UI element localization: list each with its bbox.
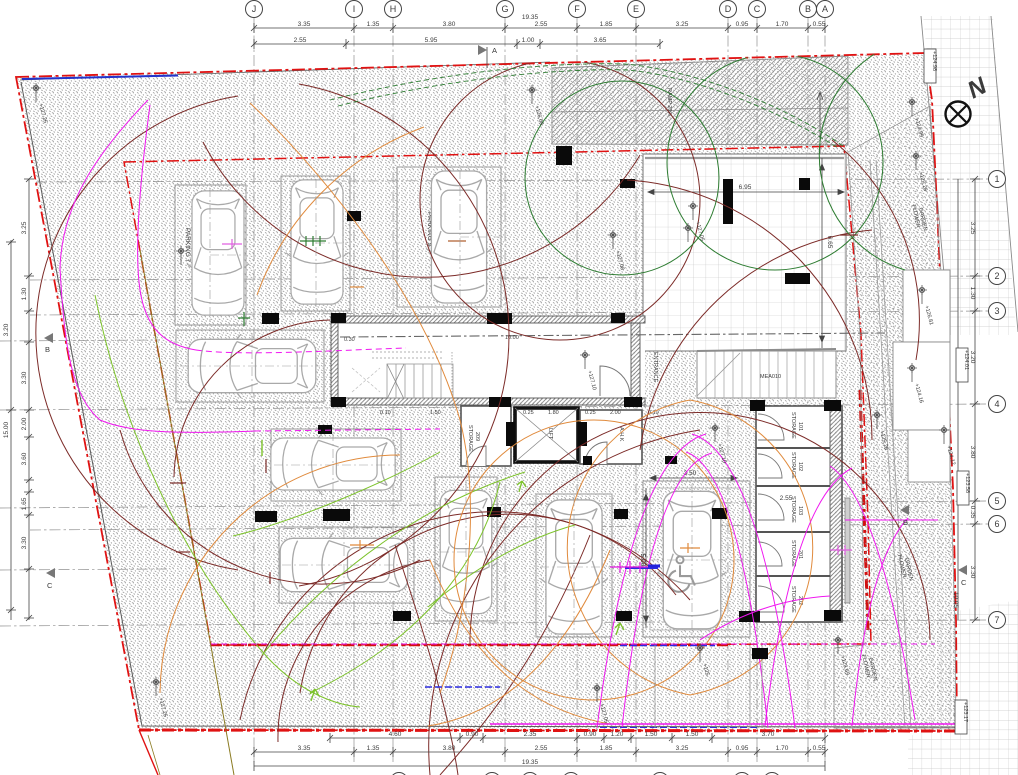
- svg-text:10.05: 10.05: [952, 592, 959, 609]
- svg-text:2.55: 2.55: [535, 745, 548, 752]
- svg-text:3.25: 3.25: [21, 221, 28, 234]
- svg-text:STORAGE: STORAGE: [790, 452, 796, 479]
- svg-text:0.10: 0.10: [380, 410, 391, 416]
- svg-text:0.10: 0.10: [648, 410, 659, 416]
- svg-text:4.60: 4.60: [389, 731, 402, 738]
- svg-text:C: C: [754, 4, 761, 14]
- svg-text:103: 103: [797, 506, 803, 515]
- svg-text:1.85: 1.85: [600, 745, 613, 752]
- svg-text:3.35: 3.35: [298, 21, 311, 28]
- svg-text:6.95: 6.95: [739, 184, 752, 191]
- svg-text:3.80: 3.80: [443, 21, 456, 28]
- svg-text:3: 3: [994, 306, 999, 316]
- svg-text:J: J: [252, 4, 257, 14]
- svg-text:4: 4: [994, 399, 999, 409]
- svg-text:+124.98: +124.98: [931, 51, 937, 71]
- svg-text:2: 2: [994, 271, 999, 281]
- svg-text:3.80: 3.80: [969, 446, 976, 459]
- svg-text:1: 1: [994, 174, 999, 184]
- svg-text:5.95: 5.95: [425, 37, 438, 44]
- svg-text:1.35: 1.35: [367, 745, 380, 752]
- svg-text:3.25: 3.25: [969, 222, 976, 235]
- svg-text:A: A: [822, 4, 828, 14]
- svg-text:3.70: 3.70: [762, 731, 775, 738]
- svg-text:3.20: 3.20: [969, 351, 976, 364]
- svg-text:3.25: 3.25: [676, 21, 689, 28]
- svg-text:B: B: [805, 4, 811, 14]
- svg-text:1.30: 1.30: [21, 287, 28, 300]
- svg-text:F: F: [574, 4, 580, 14]
- svg-text:ENTRANCE: ENTRANCE: [652, 352, 658, 383]
- svg-text:+123.58: +123.58: [964, 473, 970, 493]
- svg-text:E: E: [633, 4, 639, 14]
- svg-text:19.35: 19.35: [522, 14, 539, 21]
- svg-text:3.30: 3.30: [21, 536, 28, 549]
- svg-text:15.00: 15.00: [3, 421, 10, 438]
- svg-text:MEA010: MEA010: [760, 374, 781, 380]
- svg-text:3.60: 3.60: [21, 452, 28, 465]
- svg-text:101: 101: [797, 422, 803, 431]
- svg-text:1.00: 1.00: [522, 37, 535, 44]
- svg-text:2.00: 2.00: [610, 410, 621, 416]
- svg-text:+124.01: +124.01: [963, 350, 969, 370]
- svg-text:0.90: 0.90: [466, 731, 479, 738]
- svg-text:1.70: 1.70: [776, 745, 789, 752]
- svg-text:19.35: 19.35: [522, 759, 539, 766]
- svg-text:C: C: [47, 581, 53, 590]
- svg-text:2.55: 2.55: [780, 495, 793, 502]
- svg-text:3.35: 3.35: [298, 745, 311, 752]
- svg-text:STORAGE: STORAGE: [790, 586, 796, 613]
- svg-text:PARKING 7: PARKING 7: [184, 228, 191, 263]
- svg-text:0.30: 0.30: [344, 337, 355, 343]
- svg-text:1.65: 1.65: [21, 497, 28, 510]
- svg-text:1.20: 1.20: [611, 731, 624, 738]
- svg-text:2.55: 2.55: [294, 37, 307, 44]
- svg-text:1.50: 1.50: [430, 410, 441, 416]
- svg-text:H: H: [390, 4, 397, 14]
- svg-text:209: 209: [474, 432, 480, 441]
- svg-text:3.30: 3.30: [21, 371, 28, 384]
- svg-text:0.55: 0.55: [813, 21, 826, 28]
- svg-text:I: I: [353, 4, 356, 14]
- svg-text:C: C: [961, 578, 967, 587]
- svg-text:1.50: 1.50: [645, 731, 658, 738]
- svg-text:2.00: 2.00: [21, 417, 28, 430]
- svg-text:102: 102: [797, 462, 803, 471]
- svg-text:3.25: 3.25: [676, 745, 689, 752]
- svg-text:5: 5: [994, 496, 999, 506]
- svg-text:0.25: 0.25: [585, 410, 596, 416]
- svg-text:0.55: 0.55: [813, 745, 826, 752]
- svg-text:1.80: 1.80: [548, 410, 559, 416]
- svg-text:1.30: 1.30: [969, 287, 976, 300]
- svg-text:B: B: [903, 518, 908, 527]
- svg-text:0.95: 0.95: [736, 745, 749, 752]
- svg-text:1.70: 1.70: [776, 21, 789, 28]
- svg-text:0.35: 0.35: [969, 506, 976, 519]
- svg-text:D: D: [725, 4, 732, 14]
- svg-text:0.95: 0.95: [736, 21, 749, 28]
- svg-text:A: A: [492, 46, 497, 55]
- svg-text:0.90: 0.90: [584, 731, 597, 738]
- svg-text:3.65: 3.65: [594, 37, 607, 44]
- svg-text:3.80: 3.80: [443, 745, 456, 752]
- svg-text:2.35: 2.35: [524, 731, 537, 738]
- svg-text:10.00: 10.00: [505, 335, 519, 341]
- svg-text:STORAGE: STORAGE: [790, 540, 796, 567]
- svg-text:+123.17: +123.17: [962, 702, 968, 722]
- svg-text:1.50: 1.50: [686, 731, 699, 738]
- svg-text:LIFT: LIFT: [547, 428, 553, 440]
- svg-text:1.85: 1.85: [600, 21, 613, 28]
- svg-text:STORAGE: STORAGE: [790, 412, 796, 439]
- svg-text:3.20: 3.20: [3, 323, 10, 336]
- svg-text:G: G: [501, 4, 508, 14]
- svg-text:1.35: 1.35: [367, 21, 380, 28]
- svg-text:2.55: 2.55: [535, 21, 548, 28]
- svg-text:STORAGE: STORAGE: [467, 425, 473, 452]
- svg-text:B: B: [45, 345, 50, 354]
- svg-text:7: 7: [994, 615, 999, 625]
- svg-text:0.25: 0.25: [523, 410, 534, 416]
- svg-text:6: 6: [994, 519, 999, 529]
- svg-text:3.30: 3.30: [969, 566, 976, 579]
